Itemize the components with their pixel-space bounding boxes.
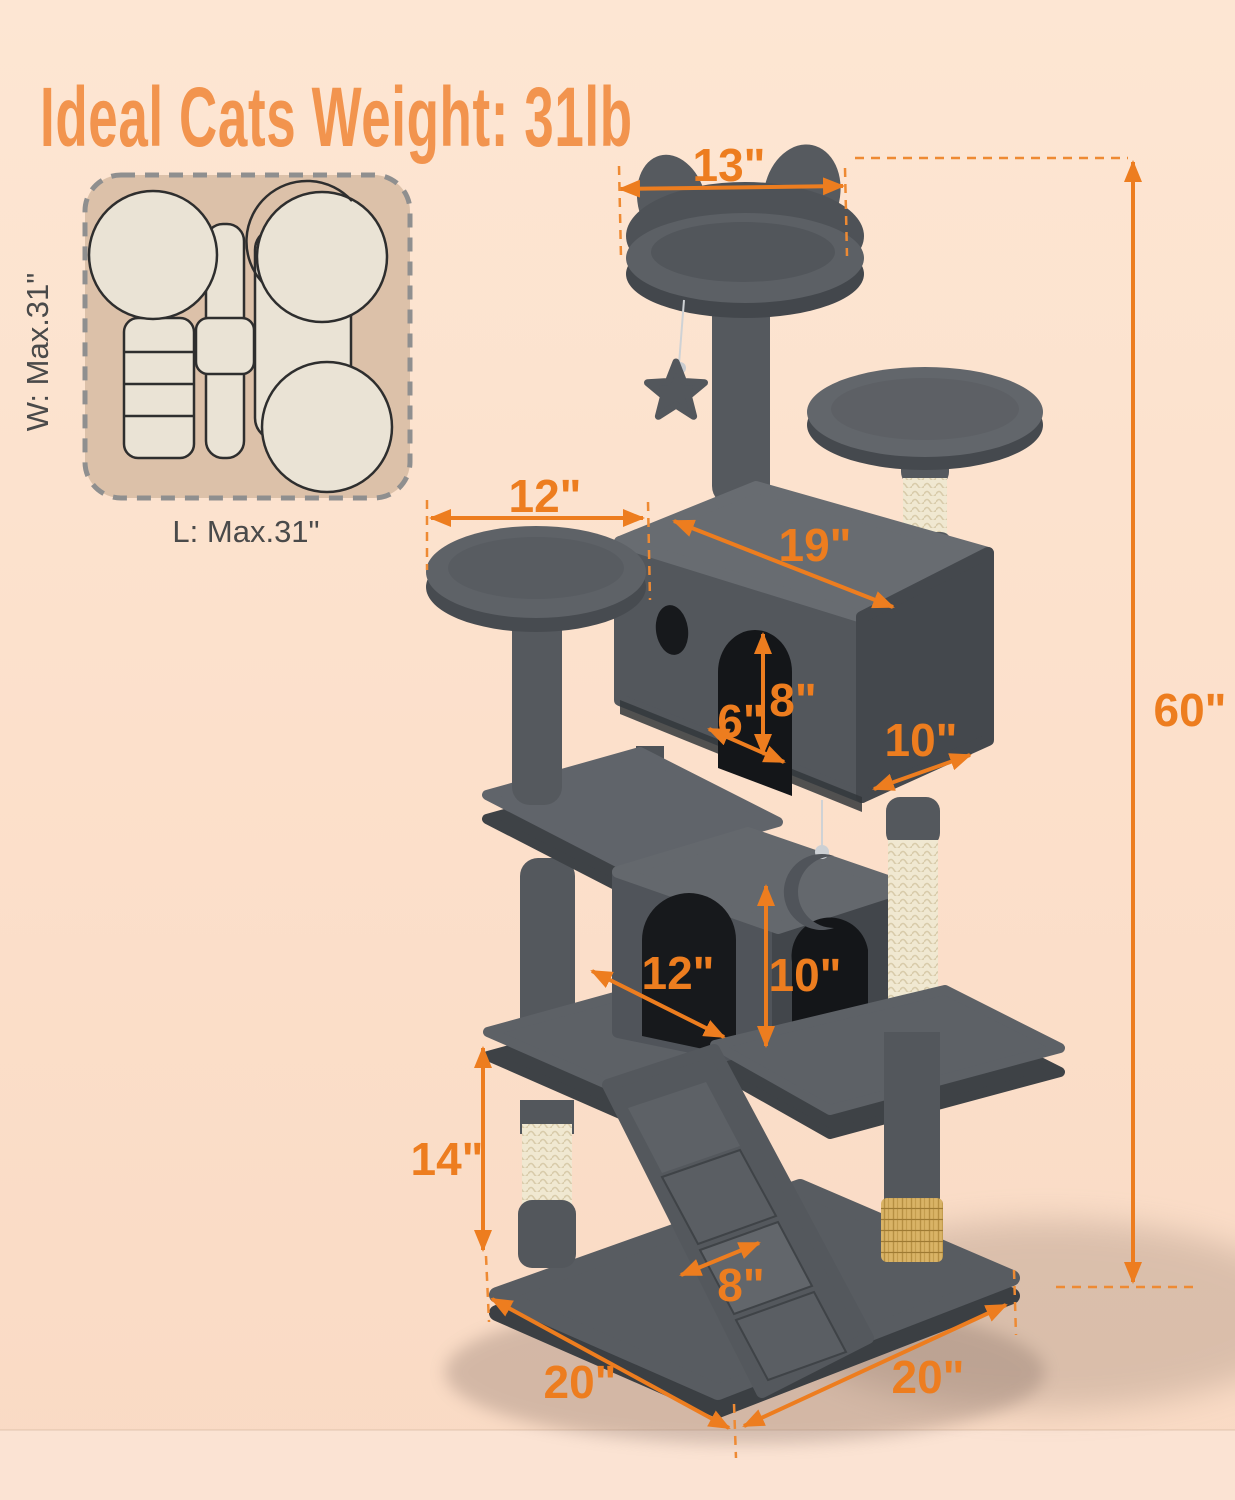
footprint-diagram: W: Max.31" L: Max.31" [20, 175, 410, 549]
star-toy [648, 300, 705, 416]
floor [0, 1430, 1235, 1500]
cat-tree-illustration [426, 137, 1235, 1444]
footprint-perch-top-left [89, 191, 217, 319]
footprint-ramp-shape [124, 318, 194, 458]
footprint-box-shape [196, 318, 254, 374]
dim-top-perch-width-label: 13" [693, 139, 766, 191]
dim-left-perch-width-label: 12" [509, 470, 582, 522]
grooming-brush [881, 1198, 943, 1262]
left-perch [426, 526, 646, 632]
right-post-lower [881, 1032, 943, 1262]
sisal-post-bottom [522, 1124, 572, 1204]
dim-top-condo-length-label: 19" [779, 519, 852, 571]
page-title: Ideal Cats Weight: 31lb [40, 69, 633, 164]
dim-top-condo-clearance-label: 6" [717, 695, 764, 747]
dim-top-condo-depth-label: 10" [885, 714, 958, 766]
dim-base-front-right-label: 20" [892, 1351, 965, 1403]
left-post-lower [518, 1100, 576, 1268]
dim-lower-condo-door-height-label: 10" [769, 949, 842, 1001]
product-dimension-diagram: Ideal Cats Weight: 31lb W: Max.31" L: Ma… [0, 0, 1235, 1500]
top-perch-post [712, 296, 770, 506]
dim-total-height: 60" [1056, 162, 1226, 1287]
dim-ramp-width-label: 8" [717, 1259, 764, 1311]
footprint-perch-top-right [257, 192, 387, 322]
footprint-length-label: L: Max.31" [172, 514, 319, 549]
dim-top-condo-door-height-label: 8" [769, 674, 816, 726]
footprint-perch-bottom-right [262, 362, 392, 492]
dim-lower-post-height: 14" [411, 1048, 489, 1322]
footprint-width-label: W: Max.31" [20, 273, 55, 432]
dim-total-height-label: 60" [1154, 684, 1227, 736]
dim-lower-condo-width-label: 12" [642, 947, 715, 999]
dim-lower-post-height-label: 14" [411, 1133, 484, 1185]
dim-base-front-left-label: 20" [544, 1356, 617, 1408]
